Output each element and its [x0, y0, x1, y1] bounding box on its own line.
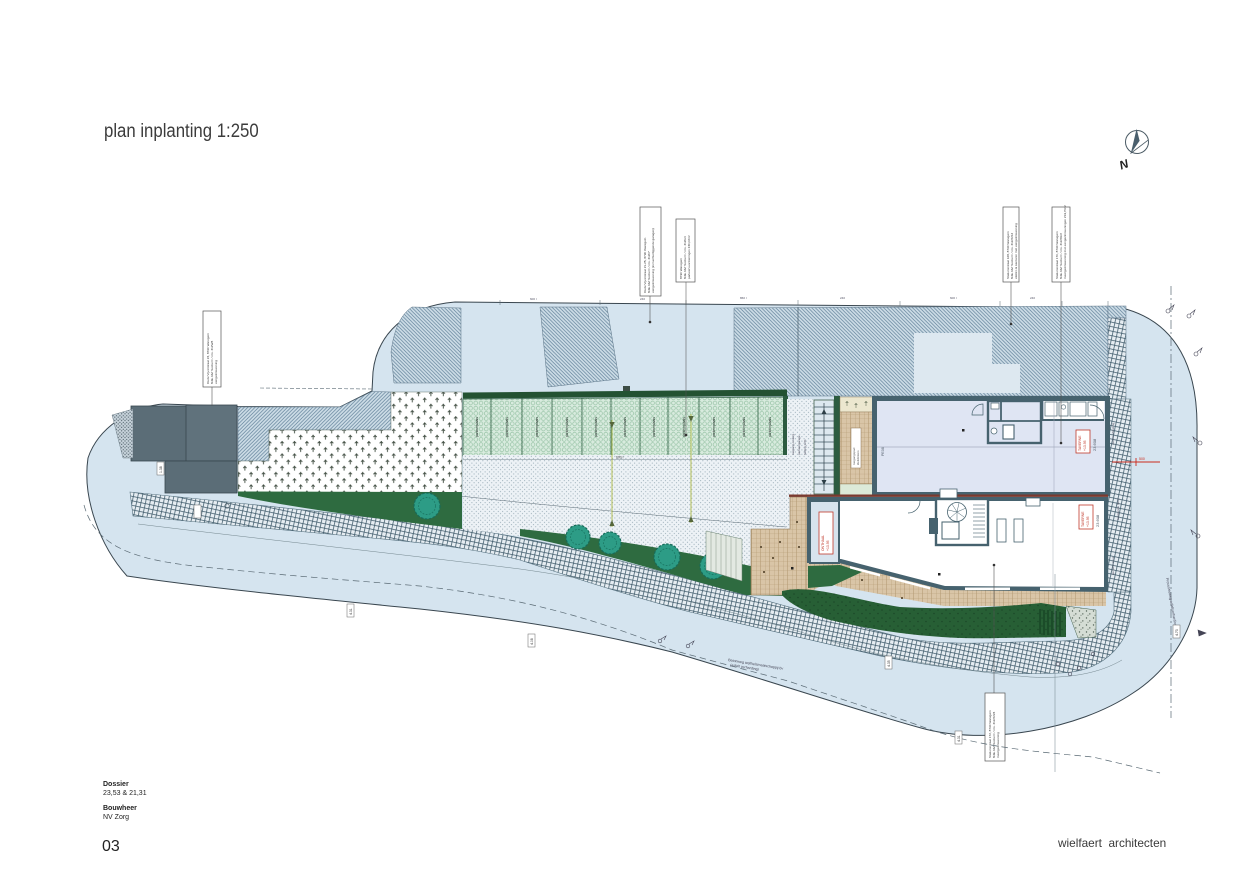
svg-text:240: 240 — [640, 297, 645, 301]
svg-text:meergezinswoning met eengezins: meergezinswoning met eengezinswoningen 2… — [1063, 205, 1067, 279]
svg-text:TAVERNE: TAVERNE — [1081, 511, 1085, 527]
svg-text:4.31: 4.31 — [349, 608, 353, 615]
svg-text:600 l: 600 l — [950, 296, 957, 300]
svg-text:23,53 & 21,31: 23,53 & 21,31 — [103, 790, 147, 797]
svg-text:240: 240 — [840, 296, 845, 300]
svg-text:N: N — [1117, 156, 1130, 172]
svg-text:4.73: 4.73 — [1175, 629, 1179, 636]
svg-text:nieuwe afsluiting: nieuwe afsluiting — [1111, 422, 1115, 445]
svg-text:elektro & kantoren met eengezi: elektro & kantoren met eengezinswoning — [1014, 223, 1018, 279]
svg-text:parkeerplaats: parkeerplaats — [565, 417, 569, 437]
svg-text:860 l: 860 l — [740, 296, 747, 300]
svg-text:1.38: 1.38 — [159, 466, 163, 473]
svg-text:parkeerplaats: parkeerplaats — [742, 417, 746, 437]
svg-text:TAVERNE: TAVERNE — [1078, 435, 1082, 451]
svg-text:23.608: 23.608 — [1092, 438, 1097, 451]
svg-text:meergezinswoning: meergezinswoning — [996, 732, 1000, 758]
svg-text:600 l: 600 l — [530, 297, 537, 301]
svg-text:bestaande haag: bestaande haag — [1116, 498, 1120, 520]
svg-text:parkeerplaats: parkeerplaats — [535, 417, 539, 437]
svg-text:+13.95: +13.95 — [826, 540, 830, 551]
svg-text:parkeervoorzieningen 230,02m²: parkeervoorzieningen 230,02m² — [687, 235, 691, 279]
svg-text:plan inplanting 1:250: plan inplanting 1:250 — [104, 120, 259, 141]
svg-text:+13.95: +13.95 — [1083, 440, 1087, 451]
svg-text:NV Zorg: NV Zorg — [103, 814, 129, 821]
svg-text:23.608: 23.608 — [1095, 514, 1100, 527]
svg-text:240: 240 — [1030, 296, 1035, 300]
svg-text:kleiklinkers: kleiklinkers — [856, 450, 860, 465]
svg-text:Bouwheer: Bouwheer — [103, 805, 137, 812]
svg-text:parkeerplaats: parkeerplaats — [623, 417, 627, 437]
svg-text:wielfaert architecten: wielfaert architecten — [1057, 836, 1166, 850]
svg-text:parkeerplaats: parkeerplaats — [505, 417, 509, 437]
svg-text:gemene muur: gemene muur — [1111, 556, 1115, 575]
svg-text:eengezinswoning (incl achterli: eengezinswoning (incl achterliggende gar… — [651, 228, 655, 293]
svg-text:toegang onderg.: toegang onderg. — [791, 433, 795, 455]
svg-text:4.35: 4.35 — [887, 660, 891, 667]
svg-text:4.31: 4.31 — [957, 735, 961, 742]
svg-text:4.08: 4.08 — [530, 638, 534, 645]
svg-text:parkeerplaats: parkeerplaats — [652, 417, 656, 437]
svg-text:03: 03 — [102, 838, 120, 855]
svg-text:parkeerplaats: parkeerplaats — [475, 417, 479, 437]
svg-text:helling 12%: helling 12% — [803, 439, 807, 455]
svg-text:parkeergarage: parkeergarage — [797, 435, 801, 455]
svg-text:parkeerplaats: parkeerplaats — [712, 417, 716, 437]
svg-text:600 l: 600 l — [616, 456, 624, 460]
svg-text:ONTHAAL: ONTHAAL — [821, 535, 825, 551]
svg-text:PE08: PE08 — [881, 447, 885, 456]
svg-text:parkeerplaats: parkeerplaats — [768, 417, 772, 437]
svg-text:500: 500 — [1139, 457, 1145, 461]
svg-text:eengezinswoning: eengezinswoning — [214, 360, 218, 384]
svg-text:parkeerplaats: parkeerplaats — [594, 417, 598, 437]
svg-text:+13.95: +13.95 — [1086, 516, 1090, 527]
svg-text:Dossier: Dossier — [103, 781, 129, 788]
